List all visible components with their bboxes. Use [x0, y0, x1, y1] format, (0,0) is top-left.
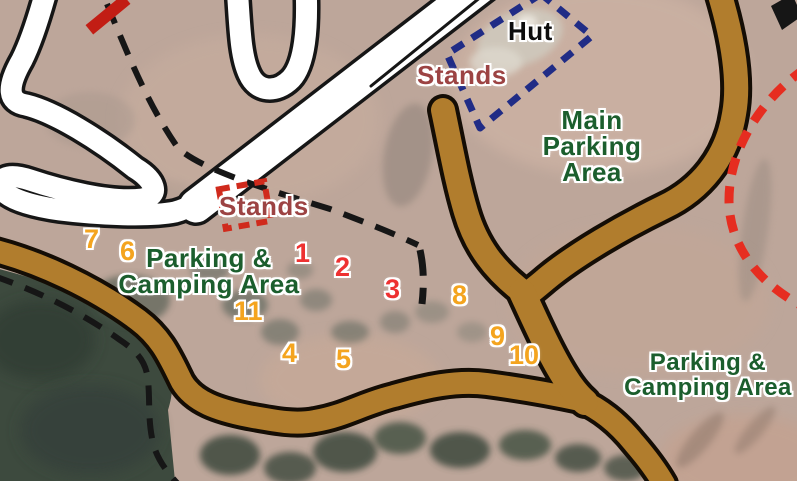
- tree-clump: [430, 432, 490, 468]
- tree-smudge: [287, 261, 313, 279]
- forest-shade: [20, 385, 160, 475]
- tree-smudge: [191, 257, 229, 283]
- tree-smudge: [222, 290, 268, 320]
- tree-smudge: [300, 289, 332, 311]
- tree-smudge: [457, 322, 487, 342]
- tree-smudge: [331, 321, 369, 343]
- tree-clump: [555, 444, 601, 472]
- tree-smudge: [415, 301, 449, 323]
- tree-clump: [374, 422, 426, 454]
- tree-clump: [200, 435, 260, 475]
- trackside-facility-map: Hut Stands Stands Main Parking Area Park…: [0, 0, 797, 481]
- tree-smudge: [261, 319, 299, 345]
- map-graphics: [0, 0, 797, 481]
- gravel-pad: [470, 47, 522, 77]
- tree-smudge: [380, 311, 410, 333]
- tree-clump: [499, 430, 551, 460]
- tree-clump: [313, 432, 377, 472]
- gravel-pad: [517, 15, 537, 29]
